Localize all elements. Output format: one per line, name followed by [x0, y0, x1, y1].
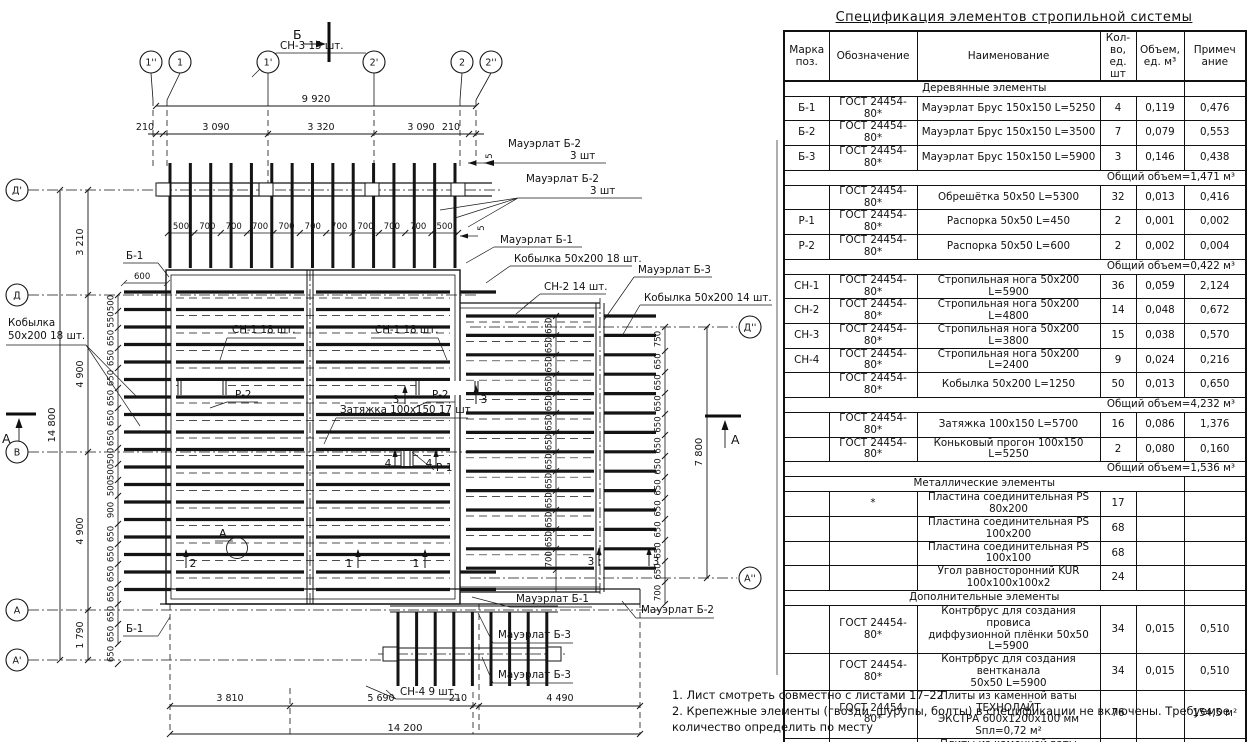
table-cell: 0,079 — [1136, 121, 1184, 146]
dim-right-small: 650 — [654, 437, 664, 453]
table-cell: 0,059 — [1136, 274, 1184, 299]
table-cell: 0,438 — [1184, 146, 1246, 171]
table-cell: ГОСТ 24454-80* — [829, 605, 917, 653]
axis-bubble-label: 2 — [459, 58, 465, 69]
table-cell — [1136, 492, 1184, 517]
table-cell: 0,013 — [1136, 185, 1184, 210]
table-row: Деревянные элементы — [784, 81, 1246, 96]
table-cell: Плиты из каменной ваты ТЕХНОЛАЙТ ЭКСТРА … — [917, 739, 1100, 742]
table-row: Р-2ГОСТ 24454-80*Распорка 50х50 L=60020,… — [784, 235, 1246, 260]
axis-bubble-label: 2' — [370, 58, 379, 69]
table-cell: Мауэрлат Брус 150х150 L=5900 — [917, 146, 1100, 171]
axis-bubble-label: Д' — [12, 186, 22, 197]
table-cell: Стропильная нога 50х200 L=3800 — [917, 324, 1100, 349]
table-cell: 0,004 — [1184, 235, 1246, 260]
section-row-label: Металлические элементы — [784, 477, 1184, 492]
table-cell: Мауэрлат Брус 150х150 L=5250 — [917, 96, 1100, 121]
table-cell: 68 — [1100, 541, 1136, 566]
table-cell: 0,672 — [1184, 299, 1246, 324]
table-cell: 76 — [1100, 739, 1136, 742]
dim-left-small: 650 — [107, 330, 117, 346]
spec-table: Марка поз.ОбозначениеНаименованиеКол-во,… — [783, 30, 1247, 742]
table-cell — [1184, 516, 1246, 541]
dim-batten-spacing: 700 — [278, 222, 294, 232]
position-flag-label: 2 — [190, 558, 197, 570]
total-row-label: Общий объем=0,422 м³ — [784, 259, 1246, 274]
table-cell — [1136, 739, 1184, 742]
spacer-gap — [401, 451, 413, 466]
table-cell: ГОСТ 24454-80* — [829, 373, 917, 398]
dim-left-segment: 3 210 — [75, 228, 86, 255]
note-line-2: 2. Крепежные элементы (гвозди, шурупы, б… — [672, 703, 1248, 735]
connector-plate — [156, 183, 170, 196]
table-cell: ГОСТ 24454-80* — [829, 274, 917, 299]
table-cell: ГОСТ 24454-80* — [829, 324, 917, 349]
table-cell: ГОСТ 24454-80* — [829, 739, 917, 742]
dim-left-overall: 14 800 — [47, 408, 58, 443]
table-cell: ГОСТ 24454-80* — [829, 146, 917, 171]
callout-kobylka-left: Кобылка — [8, 317, 55, 329]
dim-batten-spacing: 700 — [357, 222, 373, 232]
table-cell: Р-1 — [784, 210, 829, 235]
table-cell — [1184, 590, 1246, 605]
table-cell — [829, 566, 917, 591]
table-cell: СН-1 — [784, 274, 829, 299]
table-row: Дополнительные элементы — [784, 590, 1246, 605]
spacer-gap — [178, 381, 226, 395]
position-flag-label: 4 — [385, 458, 392, 470]
table-cell: 0,024 — [1136, 348, 1184, 373]
dim-top-segment: 210 — [136, 122, 154, 133]
callout-kobylka-left-2: 50х200 18 шт. — [8, 330, 85, 342]
callout-kobylka-right-14: Кобылка 50х200 14 шт. — [644, 292, 772, 304]
axis-bubble-label: А' — [12, 656, 21, 667]
dim-left-small: 500 — [107, 295, 117, 311]
table-cell: * — [829, 492, 917, 517]
dim-left-small: 650 — [107, 430, 117, 446]
section-row-label: Дополнительные элементы — [784, 590, 1184, 605]
table-cell — [784, 605, 829, 653]
dim-wing-inner: 700 — [545, 551, 555, 567]
dim-wing-inner: 650 — [545, 434, 555, 450]
callout-tie: Затяжка 100х150 17 шт. — [340, 404, 474, 416]
spec-table-header: Марка поз.ОбозначениеНаименованиеКол-во,… — [784, 31, 1246, 81]
connector-plate — [383, 647, 397, 661]
table-cell: 16 — [1100, 412, 1136, 437]
table-cell: Коньковый прогон 100х150 L=5250 — [917, 437, 1100, 462]
table-cell: 34 — [1100, 654, 1136, 690]
callout-r2-right: Р-2 — [432, 389, 448, 401]
position-flag-label: 3 — [653, 556, 660, 568]
callout-sn2: СН-2 14 шт. — [544, 281, 608, 293]
dim-right-small: 650 — [654, 458, 664, 474]
table-cell: ГОСТ 24454-80* — [829, 412, 917, 437]
axis-bubble-label: Д — [13, 291, 20, 302]
table-cell: Б-2 — [784, 121, 829, 146]
dim-batten-spacing: 700 — [226, 222, 242, 232]
table-cell — [784, 373, 829, 398]
table-cell: 0,476 — [1184, 96, 1246, 121]
axis-bubble-label: 2'' — [485, 58, 496, 69]
table-cell: 17 — [1100, 492, 1136, 517]
table-cell: 0,510 — [1184, 605, 1246, 653]
table-row: Пластина соединительная PS 100х20068 — [784, 516, 1246, 541]
table-cell: 34 — [1100, 605, 1136, 653]
table-cell: Распорка 50х50 L=450 — [917, 210, 1100, 235]
table-cell: Угол равносторонний KUR 100х100х100х2 — [917, 566, 1100, 591]
table-cell: Пластина соединительная PS 100х200 — [917, 516, 1100, 541]
table-cell: 0,001 — [1136, 210, 1184, 235]
building-geometry — [124, 163, 656, 686]
dim-batten-spacing: 500 — [436, 222, 452, 232]
table-cell: ГОСТ 24454-80* — [829, 185, 917, 210]
dim-left-small: 650 — [107, 566, 117, 582]
dim-right-small: 650 — [654, 353, 664, 369]
dim-wing-inner: 650 — [545, 356, 555, 372]
callout-mauerlat-b3-bottom2: Мауэрлат Б-3 — [498, 669, 571, 681]
dim-batten-spacing: 700 — [384, 222, 400, 232]
dim-left-small: 650 — [107, 586, 117, 602]
dim-left-small: 650 — [107, 526, 117, 542]
table-cell — [1184, 566, 1246, 591]
table-cell: ГОСТ 24454-80* — [829, 121, 917, 146]
table-cell: 9 — [1100, 348, 1136, 373]
callout-mauerlat-b2-2: Мауэрлат Б-2 — [526, 173, 599, 185]
table-cell — [784, 541, 829, 566]
table-cell: Обрешётка 50х50 L=5300 — [917, 185, 1100, 210]
section-marker-a-right-label: А — [731, 432, 740, 447]
table-cell: Контрбрус для создания провиса диффузион… — [917, 605, 1100, 653]
connector-plate — [547, 647, 561, 661]
callout-sn1-right: СН-1 18 шт. — [375, 324, 439, 336]
axis-leader — [476, 73, 491, 100]
dim-batten-spacing: 700 — [305, 222, 321, 232]
spec-col-header-2: Наименование — [917, 31, 1100, 81]
dim-bottom-segment: 5 690 — [367, 693, 394, 704]
dim-left-small: 650 — [107, 626, 117, 642]
table-cell: 2 — [1100, 210, 1136, 235]
axis-leader — [460, 73, 462, 100]
callout-mauerlat-b2-2-qty: 3 шт — [590, 185, 615, 197]
dim-wing-inner: 650 — [545, 473, 555, 489]
table-cell: 3 — [1100, 146, 1136, 171]
table-row: ГОСТ 24454-80*Контрбрус для создания про… — [784, 605, 1246, 653]
dim-right-small: 650 — [654, 521, 664, 537]
dim-left-small: 650 — [107, 350, 117, 366]
dim-edge-offset-2: 5 — [477, 225, 487, 230]
table-cell: Затяжка 100х150 L=5700 — [917, 412, 1100, 437]
table-row: Общий объем=1,471 м³ — [784, 170, 1246, 185]
axis-bubble-label: В — [14, 448, 21, 459]
table-row: ГОСТ 24454-80*Кобылка 50х200 L=1250500,0… — [784, 373, 1246, 398]
table-row: ГОСТ 24454-80*Коньковый прогон 100х150 L… — [784, 437, 1246, 462]
callout-mauerlat-b2-1: Мауэрлат Б-2 — [508, 138, 581, 150]
dim-wing-inner: 650 — [545, 337, 555, 353]
table-cell: Р-2 — [784, 235, 829, 260]
table-cell: СН-2 — [784, 299, 829, 324]
table-cell: 32 — [1100, 185, 1136, 210]
table-cell — [829, 516, 917, 541]
table-cell: ГОСТ 24454-80* — [829, 96, 917, 121]
table-cell: ГОСТ 24454-80* — [829, 348, 917, 373]
callout-b1-bottom: Б-1 — [126, 623, 143, 635]
dim-left-small: 550 — [107, 311, 117, 327]
position-flag-label: 1 — [346, 558, 353, 570]
table-cell: Контрбрус для создания вентканала 50х50 … — [917, 654, 1100, 690]
table-cell: 0,080 — [1136, 437, 1184, 462]
table-cell: 0,002 — [1136, 235, 1184, 260]
table-cell: 0,038 — [1136, 324, 1184, 349]
dim-bottom-segment: 4 490 — [546, 693, 573, 704]
table-cell: 0,119 — [1136, 96, 1184, 121]
dim-batten-spacing: 700 — [199, 222, 215, 232]
table-row: *Пластина соединительная PS 80х20017 — [784, 492, 1246, 517]
spec-col-header-4: Объем, ед. м³ — [1136, 31, 1184, 81]
table-row: ГОСТ 24454-80*Контрбрус для создания вен… — [784, 654, 1246, 690]
total-row-label: Общий объем=4,232 м³ — [784, 397, 1246, 412]
dim-batten-spacing: 700 — [331, 222, 347, 232]
dim-right-small: 700 — [654, 585, 664, 601]
dim-right-small: 650 — [654, 500, 664, 516]
dim-wing-inner: 650 — [545, 512, 555, 528]
framing-plan-drawing: 9 9202103 0903 3203 09021050070070070070… — [0, 0, 780, 742]
callout-mauerlat-b2-bottom: Мауэрлат Б-2 — [641, 604, 714, 616]
table-row: СН-2ГОСТ 24454-80*Стропильная нога 50х20… — [784, 299, 1246, 324]
table-cell — [1184, 492, 1246, 517]
table-cell: 2 — [1100, 437, 1136, 462]
dim-top-segment: 3 090 — [407, 122, 434, 133]
dim-right-small: 650 — [654, 416, 664, 432]
dim-left-small: 500 — [107, 464, 117, 480]
dim-right-small: 650 — [654, 395, 664, 411]
table-cell: 1,376 — [1184, 412, 1246, 437]
table-cell: 68 — [1100, 516, 1136, 541]
table-cell: ГОСТ 24454-80* — [829, 235, 917, 260]
total-row-label: Общий объем=1,471 м³ — [784, 170, 1246, 185]
table-cell: 15 — [1100, 324, 1136, 349]
dim-left-small: 650 — [107, 646, 117, 662]
dim-wing-inner: 650 — [545, 492, 555, 508]
callout-r2-left: Р-2 — [235, 389, 251, 401]
table-cell — [1136, 516, 1184, 541]
dim-bottom-segment: 3 810 — [216, 693, 243, 704]
table-cell: Мауэрлат Брус 150х150 L=3500 — [917, 121, 1100, 146]
dim-left-small: 650 — [107, 606, 117, 622]
position-flag-label: 3 — [588, 556, 595, 568]
table-cell: 0,650 — [1184, 373, 1246, 398]
table-cell: ГОСТ 24454-80* — [829, 299, 917, 324]
callout-sn4: СН-4 9 шт. — [400, 686, 457, 698]
table-row: ГОСТ 24454-80*Затяжка 100х150 L=5700160,… — [784, 412, 1246, 437]
table-cell — [1184, 81, 1246, 96]
table-cell: 0,416 — [1184, 185, 1246, 210]
dim-batten-spacing: 500 — [173, 222, 189, 232]
spec-col-header-0: Марка поз. — [784, 31, 829, 81]
dim-right-small: 750 — [654, 331, 664, 347]
section-marker-b-label: Б — [293, 27, 302, 42]
table-row: Металлические элементы — [784, 477, 1246, 492]
callout-mauerlat-b1-right: Мауэрлат Б-1 — [500, 234, 573, 246]
table-cell: Б-1 — [784, 96, 829, 121]
section-row-label: Деревянные элементы — [784, 81, 1184, 96]
table-row: Угол равносторонний KUR 100х100х100х224 — [784, 566, 1246, 591]
callout-r1: Р-1 — [436, 462, 452, 474]
callout-mauerlat-b3-right: Мауэрлат Б-3 — [638, 264, 711, 276]
table-cell — [784, 492, 829, 517]
dim-left-small: 650 — [107, 546, 117, 562]
table-cell: 0,160 — [1184, 437, 1246, 462]
table-row: Общий объем=0,422 м³ — [784, 259, 1246, 274]
dim-wing-inner: 650 — [545, 531, 555, 547]
table-cell: 0,015 — [1136, 654, 1184, 690]
position-flag-label: 3 — [393, 394, 400, 406]
table-row: Б-2ГОСТ 24454-80*Мауэрлат Брус 150х150 L… — [784, 121, 1246, 146]
table-row: ГОСТ 24454-80*Обрешётка 50х50 L=5300320,… — [784, 185, 1246, 210]
axis-bubble-label: 1 — [177, 58, 183, 69]
spec-col-header-3: Кол-во, ед. шт — [1100, 31, 1136, 81]
table-cell: 0,013 — [1136, 373, 1184, 398]
table-cell: 154,5 м² — [1184, 739, 1246, 742]
callout-mauerlat-b1-bottom: Мауэрлат Б-1 — [516, 593, 589, 605]
table-cell: Распорка 50х50 L=600 — [917, 235, 1100, 260]
dim-edge-offset-1: 5 — [485, 153, 495, 158]
table-cell — [1136, 541, 1184, 566]
axis-bubble-label: А'' — [744, 574, 756, 585]
connector-plate — [259, 183, 273, 196]
table-cell: 0,146 — [1136, 146, 1184, 171]
dim-left-segment: 4 900 — [75, 517, 86, 544]
table-cell: 0,002 — [1184, 210, 1246, 235]
dim-left-small: 500 — [107, 480, 117, 496]
dim-top-overall: 9 920 — [302, 94, 331, 105]
dim-wing-inner: 650 — [545, 376, 555, 392]
table-row: СН-4ГОСТ 24454-80*Стропильная нога 50х20… — [784, 348, 1246, 373]
dim-wing-inner: 650 — [545, 318, 555, 334]
table-cell: Стропильная нога 50х200 L=2400 — [917, 348, 1100, 373]
axis-bubble-label: 1' — [264, 58, 273, 69]
dim-left-segment: 1 790 — [75, 621, 86, 648]
position-flag-arrowhead — [402, 385, 407, 393]
table-cell: 2,124 — [1184, 274, 1246, 299]
dim-wing-inner: 650 — [545, 453, 555, 469]
dim-top-segment: 3 320 — [307, 122, 334, 133]
table-row: Общий объем=4,232 м³ — [784, 397, 1246, 412]
table-cell: СН-3 — [784, 324, 829, 349]
table-cell — [1136, 566, 1184, 591]
table-row: ГОСТ 24454-80*Плиты из каменной ваты ТЕХ… — [784, 739, 1246, 742]
table-cell: 0,216 — [1184, 348, 1246, 373]
table-cell: Б-3 — [784, 146, 829, 171]
table-cell: Кобылка 50х200 L=1250 — [917, 373, 1100, 398]
dim-right-overall: 7 800 — [694, 438, 705, 467]
dim-batten-spacing: 700 — [410, 222, 426, 232]
position-flag-label: 4 — [426, 458, 433, 470]
detail-label-a: А — [219, 527, 227, 540]
table-cell: Пластина соединительная PS 100х100 — [917, 541, 1100, 566]
table-cell: 14 — [1100, 299, 1136, 324]
axis-bubble-label: А — [14, 606, 21, 617]
table-cell: 0,048 — [1136, 299, 1184, 324]
table-cell: 50 — [1100, 373, 1136, 398]
table-cell: 36 — [1100, 274, 1136, 299]
total-row-label: Общий объем=1,536 м³ — [784, 462, 1246, 477]
dim-right-small: 650 — [654, 374, 664, 390]
table-cell — [784, 412, 829, 437]
table-cell: 0,510 — [1184, 654, 1246, 690]
spec-col-header-5: Примеч ание — [1184, 31, 1246, 81]
table-cell: 0,015 — [1136, 605, 1184, 653]
spec-table-title: Спецификация элементов стропильной систе… — [783, 10, 1245, 25]
table-cell: 0,553 — [1184, 121, 1246, 146]
table-cell — [829, 541, 917, 566]
table-cell: 0,086 — [1136, 412, 1184, 437]
table-cell — [784, 437, 829, 462]
callout-mauerlat-b3-bottom1: Мауэрлат Б-3 — [498, 629, 571, 641]
table-cell — [1184, 477, 1246, 492]
table-cell — [784, 566, 829, 591]
dim-bottom-overall: 14 200 — [388, 723, 423, 734]
callout-sn3: СН-3 15 шт. — [280, 40, 344, 52]
axis-bubble-label: 1'' — [145, 58, 156, 69]
connector-plate — [365, 183, 379, 196]
table-row: СН-1ГОСТ 24454-80*Стропильная нога 50х20… — [784, 274, 1246, 299]
dim-right-small: 650 — [654, 479, 664, 495]
table-cell: ГОСТ 24454-80* — [829, 654, 917, 690]
drawing-sheet: 9 9202103 0903 3203 09021050070070070070… — [0, 0, 1251, 742]
dim-left-small: 500 — [107, 448, 117, 464]
dim-left-small: 900 — [107, 502, 117, 518]
table-cell: 2 — [1100, 235, 1136, 260]
dim-wing-inner: 650 — [545, 395, 555, 411]
table-cell — [784, 516, 829, 541]
table-row: СН-3ГОСТ 24454-80*Стропильная нога 50х20… — [784, 324, 1246, 349]
dim-left-segment: 4 900 — [75, 360, 86, 387]
table-cell: 0,570 — [1184, 324, 1246, 349]
drawing-notes: 1. Лист смотреть совместно с листами 17–… — [672, 687, 1248, 736]
table-cell: Стропильная нога 50х200 L=5900 — [917, 274, 1100, 299]
callout-kobylka-right-18: Кобылка 50х200 18 шт. — [514, 253, 642, 265]
position-flag-arrowhead — [596, 547, 601, 555]
table-cell: 24 — [1100, 566, 1136, 591]
dim-batten-spacing: 700 — [252, 222, 268, 232]
axis-leader — [167, 73, 180, 100]
table-cell: СН-4 — [784, 348, 829, 373]
table-cell — [784, 739, 829, 742]
table-row: Общий объем=1,536 м³ — [784, 462, 1246, 477]
position-flag-label: 1 — [413, 558, 420, 570]
dim-top-segment: 210 — [442, 122, 460, 133]
table-cell: 4 — [1100, 96, 1136, 121]
table-row: Пластина соединительная PS 100х10068 — [784, 541, 1246, 566]
table-cell: ГОСТ 24454-80* — [829, 437, 917, 462]
table-cell — [784, 654, 829, 690]
axis-bubble-label: Д'' — [744, 323, 757, 334]
table-cell: Стропильная нога 50х200 L=4800 — [917, 299, 1100, 324]
table-row: Б-3ГОСТ 24454-80*Мауэрлат Брус 150х150 L… — [784, 146, 1246, 171]
table-row: Б-1ГОСТ 24454-80*Мауэрлат Брус 150х150 L… — [784, 96, 1246, 121]
spec-col-header-1: Обозначение — [829, 31, 917, 81]
note-line-1: 1. Лист смотреть совместно с листами 17–… — [672, 687, 1248, 703]
dim-left-small: 650 — [107, 390, 117, 406]
table-cell: ГОСТ 24454-80* — [829, 210, 917, 235]
table-cell: 7 — [1100, 121, 1136, 146]
callout-sn1-left: СН-1 18 шт. — [232, 324, 296, 336]
table-cell — [1184, 541, 1246, 566]
dim-top-segment: 3 090 — [202, 122, 229, 133]
connector-plate — [451, 183, 465, 196]
dim-left-small: 650 — [107, 410, 117, 426]
callout-b1-top: Б-1 — [126, 250, 143, 262]
